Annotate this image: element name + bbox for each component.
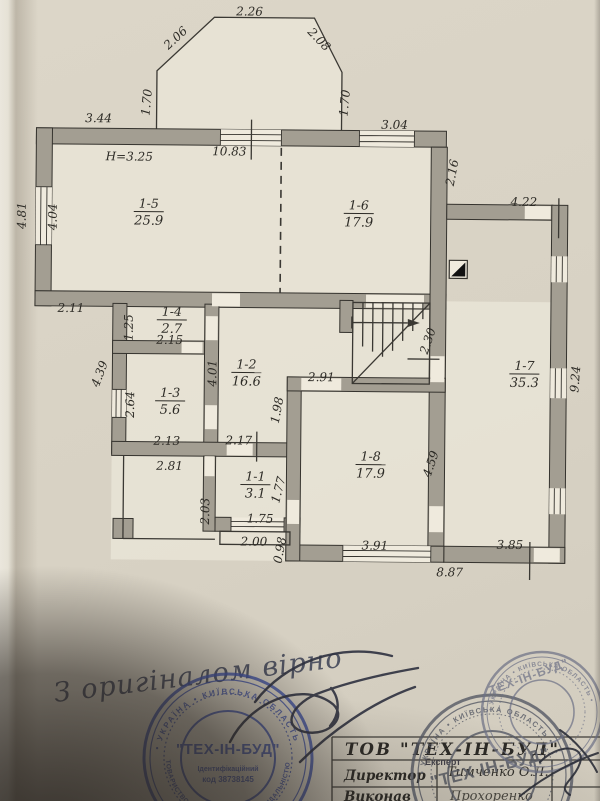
window (551, 256, 567, 282)
dimension-label: 2.81 (155, 459, 183, 473)
door-opening (429, 506, 443, 532)
dimension-label: 9.24 (567, 365, 583, 393)
dimension-label: 4.01 (205, 360, 219, 388)
dimension-label: 4.04 (46, 203, 60, 231)
svg-text:5.6: 5.6 (160, 403, 181, 418)
dimension-label: 3.44 (85, 111, 112, 125)
dimension-label: 2.26 (235, 4, 263, 18)
door-opening (430, 356, 444, 382)
svg-text:1-5: 1-5 (139, 196, 159, 211)
scanned-page: 2.262.062.081.701.703.443.0410.83Н=3.252… (0, 0, 600, 801)
window (550, 368, 566, 398)
dimension-label: 4.22 (509, 195, 537, 209)
door-opening (205, 405, 217, 429)
svg-text:1-1: 1-1 (245, 469, 265, 484)
wall (112, 441, 299, 457)
dimension-label: 2.03 (198, 497, 212, 525)
wall (340, 300, 353, 332)
dimension-label: 3.85 (496, 538, 523, 552)
dimension-label: 1.70 (336, 89, 353, 117)
dimension-label: 3.91 (361, 539, 388, 553)
plan-group: 2.262.062.081.701.703.443.0410.83Н=3.252… (12, 3, 587, 581)
dimension-label: Н=3.25 (105, 149, 153, 163)
svg-text:1-4: 1-4 (162, 304, 182, 319)
door-opening (182, 342, 203, 353)
svg-text:3.1: 3.1 (245, 487, 266, 502)
vent-marker (449, 260, 467, 278)
dimension-label: 2.00 (239, 534, 267, 548)
stamp-org-name: "ТЕХ-ІН-БУД" (176, 741, 280, 758)
dimension-label: 4.81 (15, 202, 29, 230)
stamp-id-code: код 38738145 (202, 775, 254, 784)
floor-plan-drawing: 2.262.062.081.701.703.443.0410.83Н=3.252… (0, 0, 600, 801)
svg-text:1-8: 1-8 (361, 449, 381, 464)
svg-text:2.7: 2.7 (160, 322, 183, 337)
svg-text:17.9: 17.9 (356, 466, 385, 481)
svg-text:25.9: 25.9 (133, 214, 163, 229)
svg-text:16.6: 16.6 (232, 374, 261, 389)
svg-text:1-2: 1-2 (236, 356, 256, 371)
dimension-label: 10.83 (212, 144, 247, 158)
title-block-role-director: Директор (343, 768, 426, 784)
dimension-label: 2.17 (224, 433, 252, 447)
title-block-role-executor: Виконав (343, 789, 411, 801)
stamp-id-label: Ідентифікаційний (197, 765, 258, 773)
dimension-label: 2.64 (123, 391, 137, 419)
dimension-label: 4.39 (88, 359, 111, 390)
window (359, 131, 414, 147)
svg-text:17.9: 17.9 (344, 215, 373, 230)
dimension-label: 2.11 (57, 301, 85, 315)
dimension-label: 2.91 (307, 370, 335, 384)
dimension-label: 3.04 (381, 118, 408, 132)
door-opening (287, 500, 299, 524)
dimension-label: 1.75 (247, 512, 274, 526)
dimension-label: 8.87 (436, 565, 463, 579)
dimension-label: 1.25 (122, 314, 136, 341)
svg-text:35.3: 35.3 (510, 376, 539, 391)
door-opening (212, 293, 240, 306)
door-opening (534, 548, 560, 562)
dimension-label: 2.13 (152, 434, 180, 448)
svg-text:1-7: 1-7 (514, 358, 534, 373)
door-opening (204, 456, 214, 476)
svg-text:1-6: 1-6 (349, 197, 369, 212)
wall (215, 517, 231, 531)
dimension-label: 1.70 (138, 88, 155, 116)
door-opening (206, 316, 218, 340)
window (549, 488, 565, 514)
door-opening (366, 295, 424, 309)
wall (286, 377, 302, 561)
svg-text:1-3: 1-3 (160, 385, 180, 400)
